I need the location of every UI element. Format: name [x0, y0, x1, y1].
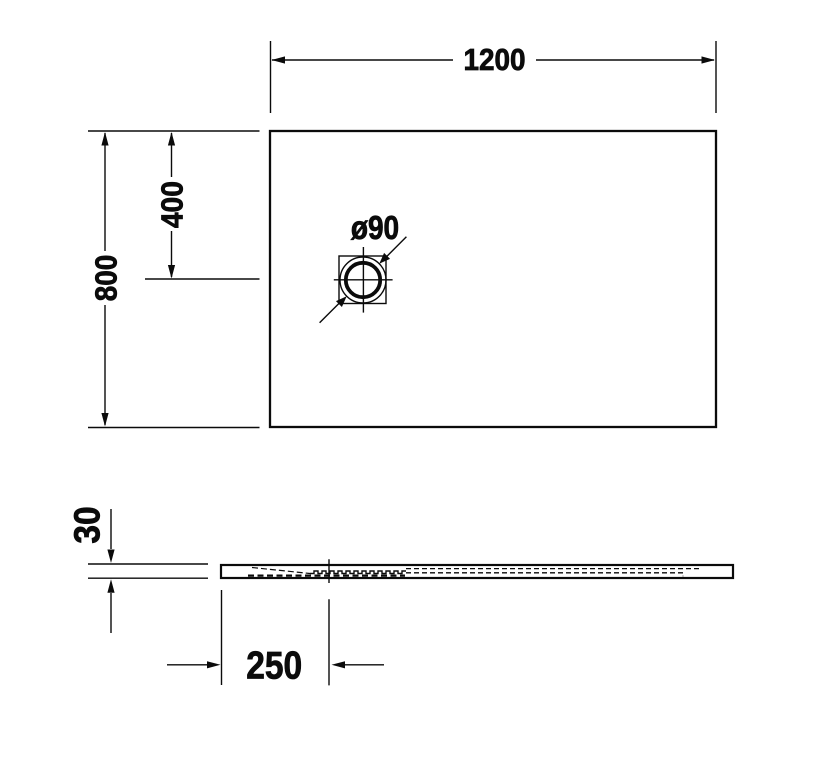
- svg-text:400: 400: [155, 181, 190, 228]
- svg-text:250: 250: [246, 643, 302, 687]
- svg-text:ø90: ø90: [351, 210, 399, 247]
- svg-text:1200: 1200: [463, 43, 525, 78]
- svg-text:30: 30: [68, 506, 107, 543]
- svg-text:800: 800: [89, 255, 124, 302]
